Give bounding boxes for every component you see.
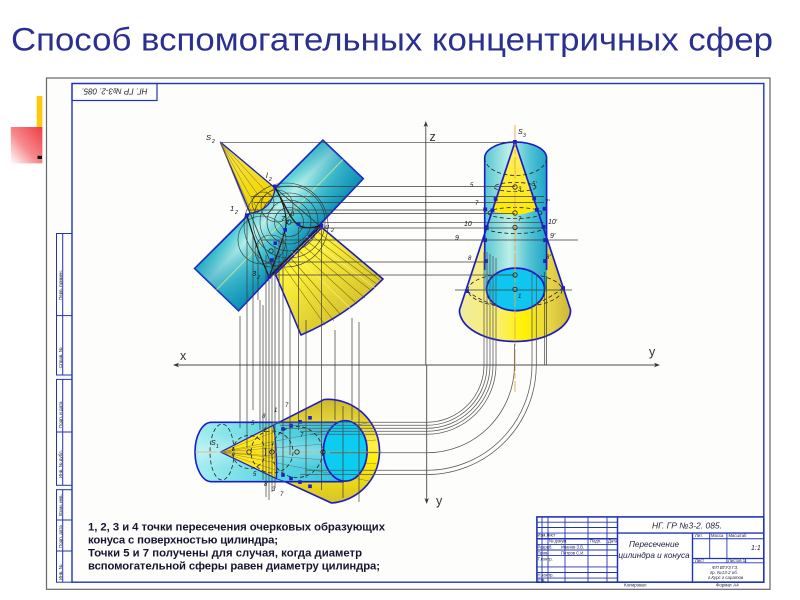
svg-text:Лит.: Лит.	[695, 533, 703, 538]
svg-text:2: 2	[211, 139, 215, 145]
svg-text:z: z	[430, 130, 436, 144]
svg-text:10': 10'	[548, 219, 558, 226]
svg-text:Инв. № дубл.: Инв. № дубл.	[58, 450, 63, 478]
svg-text:Подп. дата: Подп. дата	[58, 525, 63, 548]
svg-text:конуса с поверхностью цилиндра: конуса с поверхностью цилиндра;	[88, 535, 278, 547]
svg-text:1:1: 1:1	[751, 545, 761, 552]
svg-text:10: 10	[464, 221, 472, 228]
svg-text:Листов 1: Листов 1	[728, 558, 746, 563]
svg-text:Формат А4: Формат А4	[716, 583, 739, 588]
svg-text:НГ. ГР №3-2. 085.: НГ. ГР №3-2. 085.	[652, 521, 722, 531]
svg-text:НГ. ГР №3-2. 085.: НГ. ГР №3-2. 085.	[82, 87, 148, 96]
svg-text:Иванов З.В.: Иванов З.В.	[561, 545, 584, 550]
svg-text:9: 9	[455, 235, 459, 242]
svg-text:x: x	[180, 349, 187, 363]
svg-text:Инв. №: Инв. №	[58, 564, 63, 580]
svg-text:Лист: Лист	[695, 558, 704, 563]
svg-text:цилиндра и конуса: цилиндра и конуса	[618, 551, 690, 560]
svg-text:S: S	[206, 133, 211, 142]
svg-text:Дата: Дата	[608, 539, 618, 544]
svg-text:г.Курс г саратов: г.Курс г саратов	[708, 575, 744, 580]
svg-text:Масса: Масса	[711, 533, 724, 538]
svg-text:вспомогательной сферы равен ди: вспомогательной сферы равен диаметру цил…	[88, 561, 380, 573]
svg-text:Подп. и дата: Подп. и дата	[58, 401, 63, 428]
svg-text:9': 9'	[550, 233, 556, 240]
svg-text:Подп.: Подп.	[590, 539, 601, 544]
svg-text:Пров.: Пров.	[538, 551, 549, 556]
svg-text:Копировал: Копировал	[624, 583, 647, 588]
svg-text:2: 2	[268, 177, 272, 183]
svg-text:Способ вспомогательных концент: Способ вспомогательных концентричных сфе…	[11, 22, 773, 58]
svg-text:1: 1	[274, 408, 277, 414]
svg-text:Справ. №: Справ. №	[58, 347, 63, 368]
svg-text:Точки 5 и 7 получены для случа: Точки 5 и 7 получены для случая, когда д…	[88, 548, 362, 560]
svg-text:Т.контр.: Т.контр.	[538, 557, 553, 562]
svg-text:2: 2	[234, 210, 238, 216]
svg-text:Взам. инв.: Взам. инв.	[58, 494, 63, 516]
svg-text:2: 2	[330, 228, 334, 234]
svg-text:y: y	[436, 494, 443, 508]
svg-text:y: y	[649, 345, 656, 359]
svg-text:1: 1	[216, 444, 219, 450]
svg-text:Изм.Лист: Изм.Лист	[538, 533, 556, 538]
svg-text:Петров С.И.: Петров С.И.	[561, 551, 585, 556]
svg-text:Разраб.: Разраб.	[538, 545, 553, 550]
svg-text:№ докум.: № докум.	[549, 539, 567, 544]
svg-text:Утв.: Утв.	[538, 578, 546, 583]
svg-text:3: 3	[523, 133, 526, 139]
svg-text:Пересечение: Пересечение	[629, 540, 680, 549]
svg-text:Масштаб: Масштаб	[729, 533, 748, 538]
svg-text:1: 1	[230, 204, 234, 213]
svg-text:1, 2, 3 и 4 точки пересечения: 1, 2, 3 и 4 точки пересечения очерковых …	[88, 522, 386, 534]
svg-text:1: 1	[518, 294, 521, 300]
svg-text:2: 2	[285, 220, 289, 226]
svg-text:Перв. примен.: Перв. примен.	[58, 270, 63, 300]
